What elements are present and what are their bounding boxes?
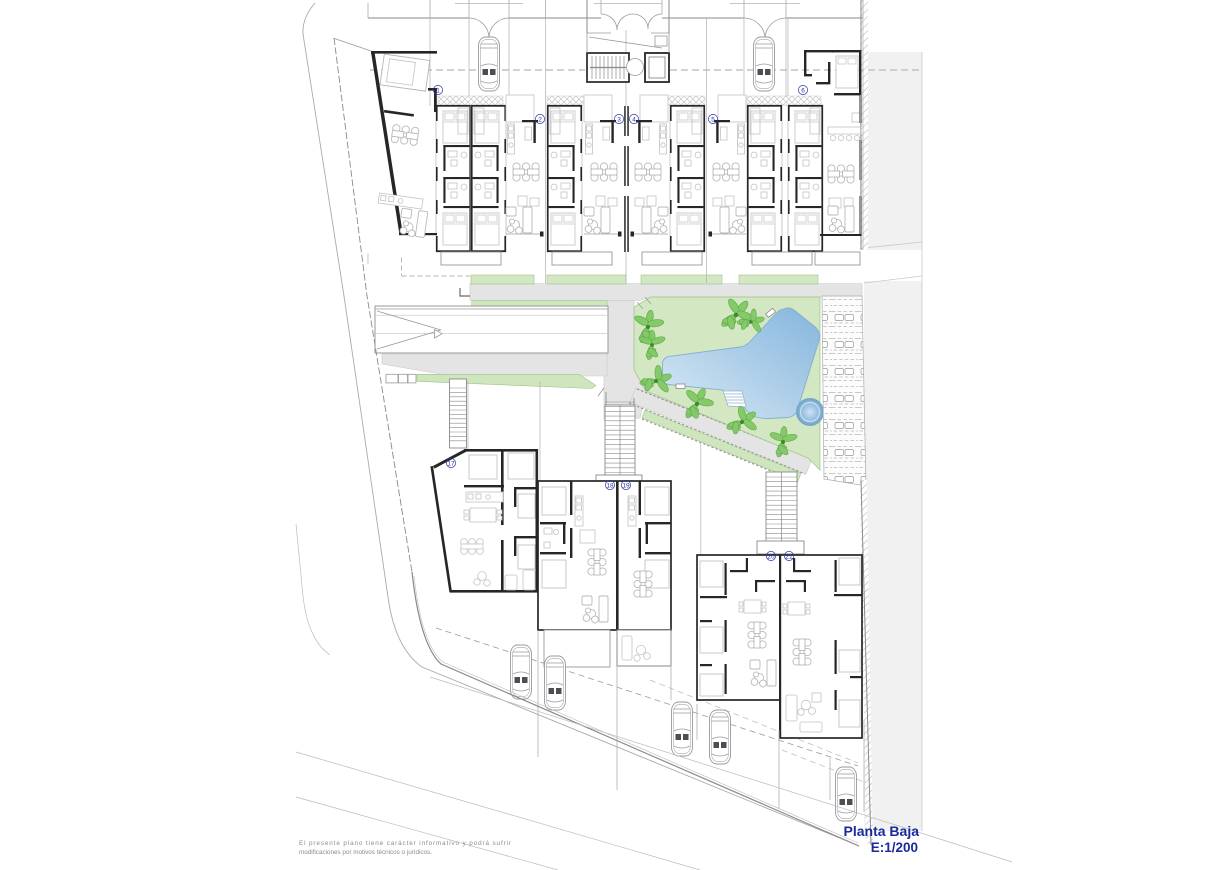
svg-text:E:1/200: E:1/200	[871, 840, 918, 855]
svg-text:4: 4	[632, 116, 636, 123]
svg-text:19: 19	[622, 482, 630, 489]
svg-text:5: 5	[711, 116, 715, 123]
svg-text:17: 17	[447, 460, 455, 467]
svg-text:1: 1	[436, 87, 440, 94]
svg-text:El presente plano tiene caráct: El presente plano tiene carácter informa…	[299, 840, 511, 847]
svg-text:2: 2	[538, 116, 542, 123]
svg-text:3: 3	[617, 116, 621, 123]
svg-text:6: 6	[801, 87, 805, 94]
svg-text:modificaciones por motivos téc: modificaciones por motivos técnicos o ju…	[299, 849, 432, 856]
svg-text:Planta Baja: Planta Baja	[844, 823, 920, 839]
svg-text:21: 21	[785, 553, 793, 560]
svg-text:18: 18	[606, 482, 614, 489]
svg-text:20: 20	[767, 553, 775, 560]
